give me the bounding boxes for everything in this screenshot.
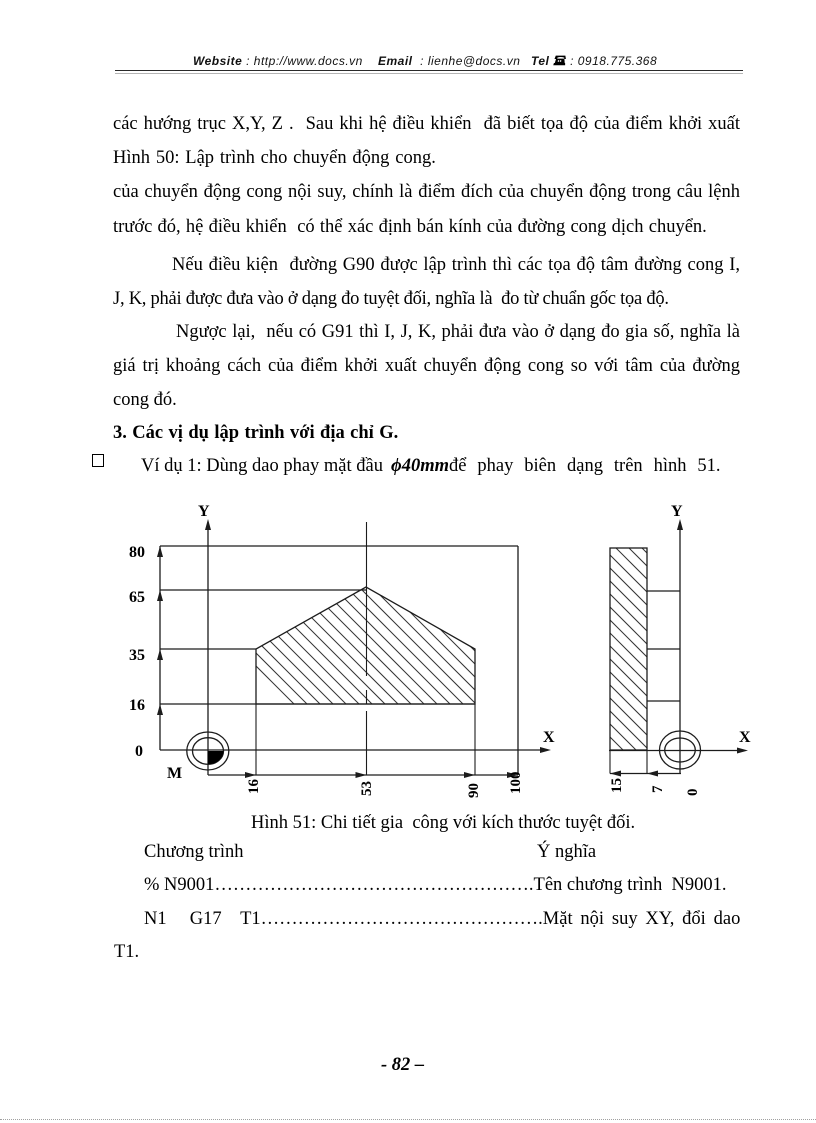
svg-text:53: 53 bbox=[359, 781, 375, 796]
svg-text:90: 90 bbox=[466, 783, 482, 798]
svg-text:7: 7 bbox=[650, 785, 666, 793]
svg-text:16: 16 bbox=[129, 697, 145, 714]
svg-text:16: 16 bbox=[246, 779, 262, 795]
svg-text:80: 80 bbox=[129, 544, 145, 561]
svg-text:35: 35 bbox=[129, 647, 145, 664]
svg-text:65: 65 bbox=[129, 589, 145, 606]
svg-text:0: 0 bbox=[685, 789, 701, 797]
svg-text:M: M bbox=[167, 765, 182, 782]
svg-text:X: X bbox=[739, 729, 751, 746]
svg-text:100: 100 bbox=[508, 772, 524, 795]
svg-text:0: 0 bbox=[135, 743, 143, 760]
svg-text:15: 15 bbox=[609, 778, 625, 793]
svg-text:Y: Y bbox=[671, 503, 683, 520]
svg-text:Y: Y bbox=[198, 503, 210, 520]
svg-text:X: X bbox=[543, 729, 555, 746]
